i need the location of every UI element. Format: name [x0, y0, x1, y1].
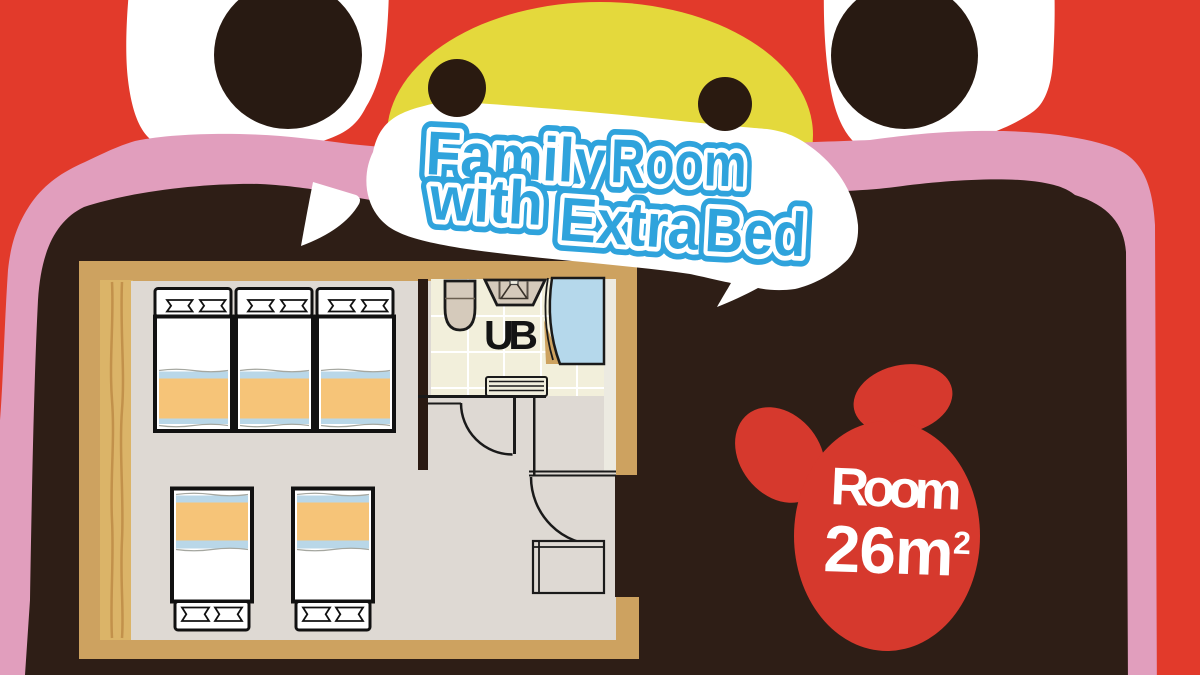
- svg-text:with: with: [427, 164, 544, 239]
- svg-text:26m: 26m: [823, 511, 956, 589]
- svg-text:UB: UB: [484, 312, 538, 358]
- svg-text:Bed: Bed: [703, 196, 807, 270]
- svg-text:2: 2: [952, 525, 971, 562]
- svg-text:Extra: Extra: [557, 185, 702, 264]
